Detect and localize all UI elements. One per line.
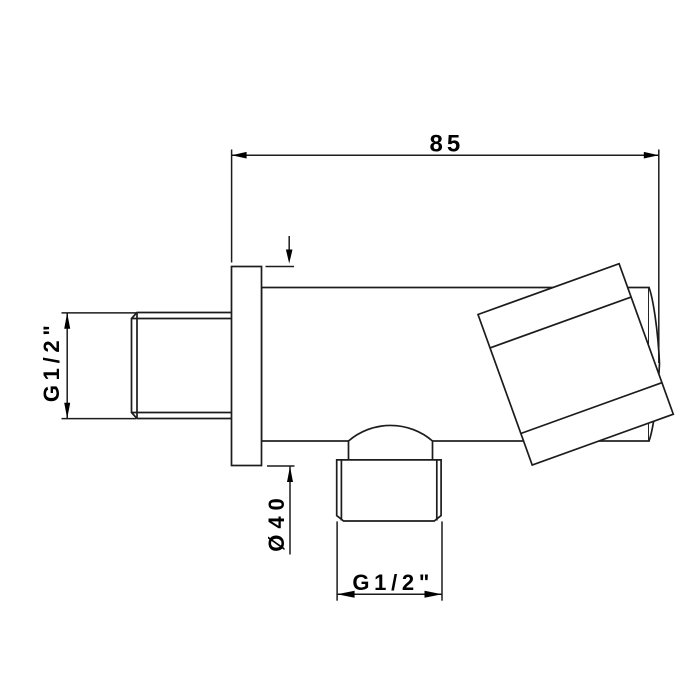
svg-text:G1/2": G1/2": [39, 320, 64, 402]
svg-text:G1/2": G1/2": [352, 570, 434, 595]
svg-text:Ø40: Ø40: [264, 492, 289, 552]
svg-text:85: 85: [430, 131, 465, 158]
